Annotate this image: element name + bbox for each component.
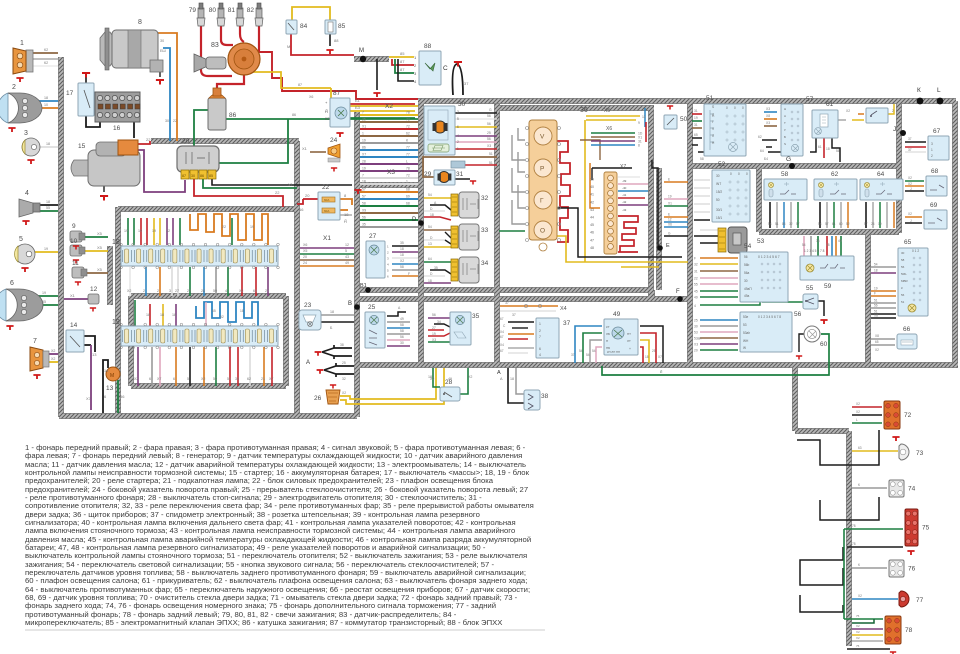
svg-text:Б1: Б1 [355, 98, 361, 103]
svg-text:18: 18 [112, 239, 120, 246]
svg-text:19: 19 [878, 222, 882, 226]
svg-text:Х3: Х3 [487, 144, 491, 148]
svg-text:Х3: Х3 [432, 338, 436, 342]
svg-text:57: 57 [796, 222, 800, 226]
svg-text:19: 19 [112, 319, 120, 326]
svg-text:88: 88 [334, 38, 339, 43]
svg-text:77: 77 [406, 146, 410, 150]
svg-text:30: 30 [901, 251, 905, 255]
svg-text:0: 0 [746, 172, 748, 176]
svg-text:12: 12 [90, 286, 98, 293]
svg-text:36: 36 [580, 107, 588, 114]
svg-text:19: 19 [362, 167, 366, 171]
svg-text:64: 64 [760, 149, 764, 153]
svg-text:-39: -39 [622, 179, 627, 183]
svg-text:49: 49 [345, 261, 349, 265]
svg-text:Х4: Х4 [500, 343, 504, 347]
svg-text:А: А [784, 114, 786, 118]
svg-text:54: 54 [586, 353, 590, 357]
svg-text:Х2: Х2 [856, 636, 860, 640]
svg-text:37: 37 [563, 320, 571, 327]
svg-text:87: 87 [333, 90, 341, 97]
svg-text:Л: Л [712, 134, 714, 138]
svg-text:72: 72 [406, 125, 410, 129]
svg-text:49аП: 49аП [744, 287, 752, 291]
svg-text:31: 31 [694, 109, 698, 113]
svg-text:56: 56 [400, 335, 404, 339]
svg-text:78: 78 [852, 524, 856, 528]
svg-text:87: 87 [400, 59, 405, 64]
svg-text:Х2: Х2 [400, 259, 404, 263]
svg-text:64: 64 [428, 257, 432, 261]
svg-text:75: 75 [856, 644, 860, 648]
svg-text:D: D [412, 217, 417, 223]
svg-text:85: 85 [338, 23, 346, 30]
svg-text:34: 34 [437, 320, 441, 324]
svg-text:27: 27 [369, 233, 377, 240]
svg-text:L: L [937, 87, 941, 94]
svg-text:М: М [359, 48, 364, 54]
svg-text:Х7: Х7 [620, 164, 626, 170]
svg-text:30/1: 30/1 [716, 208, 722, 212]
svg-text:К: К [917, 87, 921, 94]
svg-text:1: 1 [931, 148, 933, 152]
svg-text:Х2: Х2 [239, 289, 243, 293]
svg-text:60A: 60A [324, 198, 329, 202]
svg-text:Х5: Х5 [303, 249, 307, 253]
svg-text:Х8: Х8 [766, 114, 770, 118]
svg-text:62: 62 [758, 135, 762, 139]
svg-text:61: 61 [706, 163, 710, 167]
svg-text:49а: 49а [744, 294, 750, 298]
svg-text:-41: -41 [622, 193, 627, 197]
svg-text:56b: 56b [744, 263, 750, 267]
svg-text:16: 16 [113, 125, 121, 132]
svg-text:65: 65 [212, 309, 216, 313]
svg-text:4: 4 [694, 304, 696, 308]
svg-text:A: A [497, 370, 501, 376]
svg-text:Д: Д [344, 218, 347, 223]
svg-text:73: 73 [916, 450, 924, 457]
svg-text:21: 21 [261, 377, 265, 381]
svg-text:0 1 2 3 4 5 6 7: 0 1 2 3 4 5 6 7 [758, 255, 780, 259]
svg-text:Е: Е [666, 243, 670, 249]
svg-text:51: 51 [874, 299, 878, 303]
svg-text:18: 18 [428, 279, 432, 283]
svg-text:15: 15 [78, 143, 86, 150]
svg-text:-43: -43 [622, 208, 627, 212]
svg-text:54: 54 [818, 222, 822, 226]
svg-text:Х1: Х1 [70, 293, 76, 298]
svg-text:22: 22 [322, 184, 330, 191]
svg-text:18: 18 [160, 313, 164, 317]
svg-text:6: 6 [173, 377, 175, 381]
svg-text:62: 62 [247, 377, 251, 381]
svg-text:35: 35 [434, 266, 438, 270]
svg-text:65: 65 [694, 133, 698, 137]
svg-text:24: 24 [303, 261, 307, 265]
svg-text:0: 0 [742, 106, 744, 110]
svg-text:18: 18 [46, 200, 50, 204]
svg-text:Х6: Х6 [303, 243, 307, 247]
svg-text:56: 56 [901, 293, 905, 297]
svg-text:56: 56 [362, 216, 366, 220]
svg-text:80: 80 [209, 7, 217, 14]
svg-text:Х1: Х1 [362, 125, 366, 129]
svg-text:28: 28 [201, 289, 205, 293]
svg-text:22: 22 [222, 225, 226, 229]
svg-text:Б: Б [784, 135, 786, 139]
svg-text:61: 61 [832, 222, 836, 226]
svg-text:19: 19 [44, 247, 48, 251]
svg-text:69: 69 [930, 202, 938, 209]
svg-text:25: 25 [362, 118, 366, 122]
svg-text:18: 18 [400, 247, 404, 251]
svg-text:15/2: 15/2 [716, 190, 722, 194]
svg-text:6: 6 [539, 347, 541, 351]
svg-text:65: 65 [904, 239, 912, 246]
svg-text:85: 85 [209, 174, 213, 178]
svg-text:46: 46 [590, 231, 594, 235]
svg-text:К: К [406, 139, 408, 143]
svg-text:М: М [287, 44, 290, 49]
svg-text:58: 58 [400, 323, 404, 327]
svg-text:23: 23 [187, 289, 191, 293]
svg-text:2: 2 [539, 329, 541, 333]
svg-text:Х2: Х2 [908, 182, 912, 186]
svg-text:G: G [489, 108, 492, 112]
svg-text:78: 78 [905, 627, 913, 634]
svg-text:78: 78 [852, 542, 856, 546]
svg-text:55: 55 [46, 206, 50, 210]
svg-text:56: 56 [120, 394, 125, 399]
svg-text:68: 68 [931, 168, 939, 175]
svg-text:5: 5 [457, 117, 459, 121]
svg-text:12: 12 [668, 218, 672, 222]
svg-text:Х6: Х6 [668, 223, 672, 227]
svg-text:72: 72 [406, 174, 410, 178]
svg-text:55: 55 [694, 283, 698, 287]
svg-text:38: 38 [541, 393, 549, 400]
svg-text:17: 17 [66, 90, 74, 97]
svg-text:Г: Г [540, 198, 544, 205]
svg-text:37: 37 [512, 313, 516, 317]
svg-text:Х2: Х2 [856, 624, 860, 628]
svg-text:57: 57 [806, 96, 814, 103]
svg-text:6: 6 [10, 280, 14, 287]
svg-text:V: V [540, 134, 545, 141]
svg-text:54: 54 [592, 349, 596, 353]
svg-text:К: К [858, 563, 860, 567]
svg-text:34: 34 [481, 260, 489, 267]
svg-text:I: I [712, 120, 713, 124]
svg-text:30: 30 [694, 325, 698, 329]
svg-text:57: 57 [362, 195, 366, 199]
svg-text:51: 51 [775, 222, 779, 226]
svg-text:56: 56 [744, 255, 748, 259]
svg-text:Х5: Х5 [97, 245, 103, 250]
svg-text:Х3: Х3 [387, 169, 395, 176]
svg-text:7: 7 [539, 335, 541, 339]
svg-text:30: 30 [400, 341, 404, 345]
svg-text:Х7: Х7 [658, 355, 662, 359]
svg-text:Х1: Х1 [668, 202, 672, 206]
svg-text:27: 27 [175, 289, 179, 293]
svg-text:19: 19 [152, 229, 156, 233]
svg-text:53ah: 53ah [743, 331, 750, 335]
svg-text:10: 10 [70, 238, 78, 245]
svg-text:Х3: Х3 [766, 107, 770, 111]
svg-text:52: 52 [220, 315, 224, 319]
svg-text:58: 58 [836, 149, 840, 153]
svg-text:58: 58 [400, 265, 404, 269]
svg-text:2: 2 [931, 154, 933, 158]
svg-text:19: 19 [124, 229, 128, 233]
svg-text:18: 18 [240, 309, 244, 313]
svg-text:Е: Е [668, 178, 670, 182]
svg-text:51: 51 [706, 95, 714, 102]
svg-text:48: 48 [590, 246, 594, 250]
svg-text:Х7: Х7 [86, 396, 92, 401]
svg-text:18: 18 [430, 213, 434, 217]
svg-text:5: 5 [345, 249, 347, 253]
svg-text:27: 27 [432, 326, 436, 330]
svg-text:0 1 2 3 4 5 6 7 8: 0 1 2 3 4 5 6 7 8 [758, 315, 781, 319]
svg-text:57: 57 [864, 222, 868, 226]
svg-text:86: 86 [200, 174, 204, 178]
svg-text:L: L [856, 418, 858, 422]
svg-text:Х4: Х4 [500, 330, 504, 334]
svg-text:40: 40 [590, 185, 594, 189]
svg-text:22: 22 [275, 190, 280, 195]
svg-text:P: P [540, 166, 544, 173]
svg-text:Х3: Х3 [694, 343, 698, 347]
svg-text:43: 43 [345, 255, 349, 259]
svg-text:Н: Н [784, 107, 786, 111]
svg-text:68: 68 [406, 188, 410, 192]
svg-text:13: 13 [106, 385, 114, 392]
svg-text:8: 8 [138, 19, 142, 26]
svg-text:61: 61 [818, 145, 822, 149]
svg-text:Х2: Х2 [856, 630, 860, 634]
svg-text:Х2: Х2 [127, 289, 131, 293]
svg-text:12: 12 [345, 243, 349, 247]
svg-text:Х8: Х8 [875, 334, 879, 338]
svg-text:53: 53 [743, 323, 747, 327]
svg-text:10: 10 [44, 103, 48, 107]
svg-text:76: 76 [908, 566, 916, 573]
svg-text:24: 24 [871, 222, 875, 226]
svg-text:2: 2 [12, 84, 16, 91]
svg-text:19: 19 [42, 291, 46, 295]
svg-text:WH: WH [743, 339, 749, 343]
svg-text:8: 8 [638, 144, 640, 148]
svg-text:53аh: 53аh [694, 337, 702, 341]
svg-text:22: 22 [173, 119, 177, 123]
svg-text:58: 58 [700, 157, 704, 161]
svg-text:3: 3 [457, 110, 459, 114]
svg-text:19: 19 [668, 195, 672, 199]
svg-text:М: М [110, 373, 114, 379]
svg-text:Е: Е [668, 213, 670, 217]
svg-text:45: 45 [590, 223, 594, 227]
svg-text:56: 56 [901, 265, 905, 269]
svg-text:78: 78 [406, 111, 410, 115]
svg-text:56: 56 [487, 122, 491, 126]
svg-text:-42: -42 [622, 200, 627, 204]
svg-text:5ML: 5ML [901, 272, 907, 276]
svg-text:49: 49 [838, 239, 842, 243]
svg-text:2: 2 [143, 289, 145, 293]
svg-text:75: 75 [856, 614, 860, 618]
svg-text:11: 11 [642, 115, 646, 119]
svg-text:W: W [743, 346, 746, 350]
svg-text:Х2: Х2 [846, 109, 850, 113]
svg-text:9: 9 [638, 121, 640, 125]
svg-text:К: К [901, 286, 903, 290]
svg-text:S: S [784, 142, 786, 146]
svg-text:3: 3 [169, 289, 171, 293]
svg-text:50: 50 [680, 116, 688, 123]
svg-text:4: 4 [457, 134, 459, 138]
svg-text:20: 20 [305, 193, 310, 198]
svg-text:Б4: Б4 [764, 157, 768, 161]
svg-text:78: 78 [406, 167, 410, 171]
svg-text:26: 26 [314, 395, 322, 402]
svg-text:19: 19 [694, 116, 698, 120]
svg-text:18: 18 [510, 377, 514, 381]
svg-text:ЛТ: ЛТ [627, 339, 631, 343]
svg-text:O: O [540, 228, 545, 235]
svg-text:18: 18 [400, 253, 404, 257]
svg-text:60: 60 [820, 341, 828, 348]
svg-text:72: 72 [904, 412, 912, 419]
svg-text:Б6: Б6 [355, 112, 361, 117]
svg-text:32: 32 [481, 195, 489, 202]
svg-text:67: 67 [500, 335, 504, 339]
svg-text:4: 4 [25, 190, 29, 197]
svg-text:54: 54 [579, 349, 583, 353]
svg-text:З0: З0 [160, 39, 164, 43]
svg-text:4: 4 [539, 353, 541, 357]
svg-text:5: 5 [19, 236, 23, 243]
svg-text:Х7: Х7 [362, 153, 366, 157]
svg-text:Х2: Х2 [908, 176, 912, 180]
svg-text:18: 18 [826, 147, 830, 151]
svg-text:15/1: 15/1 [716, 216, 722, 220]
svg-text:67: 67 [933, 128, 941, 135]
svg-text:9: 9 [72, 223, 76, 230]
svg-text:F: F [408, 272, 410, 276]
svg-text:1: 1 [539, 322, 541, 326]
svg-text:87: 87 [400, 67, 405, 72]
svg-text:35: 35 [400, 241, 404, 245]
svg-text:59: 59 [824, 283, 832, 290]
svg-text:35: 35 [472, 313, 480, 320]
svg-text:КП ЛП ПП: КП ЛП ПП [607, 350, 620, 354]
svg-text:37: 37 [571, 353, 575, 357]
svg-text:Х1: Х1 [302, 146, 308, 151]
svg-text:58: 58 [901, 258, 905, 262]
svg-text:42: 42 [590, 200, 594, 204]
svg-text:54: 54 [428, 225, 432, 229]
svg-text:67: 67 [500, 317, 504, 321]
svg-text:14: 14 [104, 369, 108, 373]
svg-text:Х5: Х5 [97, 231, 103, 236]
svg-text:Х3: Х3 [766, 121, 770, 125]
svg-text:1: 1 [362, 132, 364, 136]
svg-text:30: 30 [744, 279, 748, 283]
svg-text:Х2: Х2 [856, 402, 860, 406]
svg-text:28: 28 [445, 379, 453, 386]
svg-text:60: 60 [839, 222, 843, 226]
svg-text:У: У [784, 128, 786, 132]
svg-text:50: 50 [716, 198, 720, 202]
svg-text:81: 81 [228, 7, 236, 14]
svg-text:61: 61 [826, 101, 834, 108]
svg-text:1 2 3 4 5 6 7 8: 1 2 3 4 5 6 7 8 [804, 249, 825, 253]
svg-text:31: 31 [694, 270, 698, 274]
svg-text:18: 18 [344, 212, 349, 217]
svg-text:18: 18 [46, 142, 50, 146]
svg-text:56: 56 [487, 137, 491, 141]
svg-text:КТ: КТ [606, 325, 610, 329]
svg-text:КЗ: КЗ [325, 116, 330, 121]
svg-text:25: 25 [652, 349, 656, 353]
svg-text:Х4: Х4 [560, 306, 567, 312]
svg-text:72: 72 [406, 118, 410, 122]
svg-text:A: A [306, 360, 310, 366]
svg-text:Х1: Х1 [323, 235, 331, 242]
svg-text:32: 32 [694, 263, 698, 267]
svg-text:Х2: Х2 [342, 391, 346, 395]
svg-text:62: 62 [831, 171, 839, 178]
svg-text:75: 75 [922, 525, 930, 532]
svg-text:58: 58 [362, 202, 366, 206]
svg-text:85: 85 [400, 51, 405, 56]
svg-text:18: 18 [874, 269, 878, 273]
svg-text:4: 4 [225, 289, 227, 293]
svg-text:F: F [694, 257, 696, 261]
svg-text:C: C [443, 65, 448, 72]
svg-text:61: 61 [253, 289, 257, 293]
svg-text:79: 79 [189, 7, 197, 14]
svg-text:+: + [629, 347, 631, 351]
svg-text:3: 3 [931, 142, 933, 146]
svg-text:37: 37 [464, 81, 469, 86]
svg-text:G: G [648, 170, 651, 174]
svg-text:20: 20 [303, 255, 307, 259]
svg-text:19: 19 [138, 229, 142, 233]
svg-text:Х2: Х2 [875, 348, 879, 352]
svg-text:Х6: Х6 [606, 126, 612, 132]
svg-text:0: 0 [726, 106, 728, 110]
svg-text:62: 62 [406, 132, 410, 136]
svg-text:27: 27 [265, 289, 269, 293]
svg-text:25: 25 [487, 131, 491, 135]
svg-text:84: 84 [300, 23, 308, 30]
svg-text:18: 18 [330, 310, 334, 314]
svg-text:Х7: Х7 [157, 377, 161, 381]
svg-text:Х5: Х5 [97, 267, 103, 272]
svg-text:30: 30 [458, 101, 466, 108]
svg-text:59: 59 [213, 289, 217, 293]
svg-text:L: L [406, 160, 408, 164]
svg-text:J: J [893, 126, 896, 133]
svg-text:44: 44 [590, 216, 594, 220]
svg-text:77: 77 [916, 597, 924, 604]
svg-text:18: 18 [826, 243, 830, 247]
